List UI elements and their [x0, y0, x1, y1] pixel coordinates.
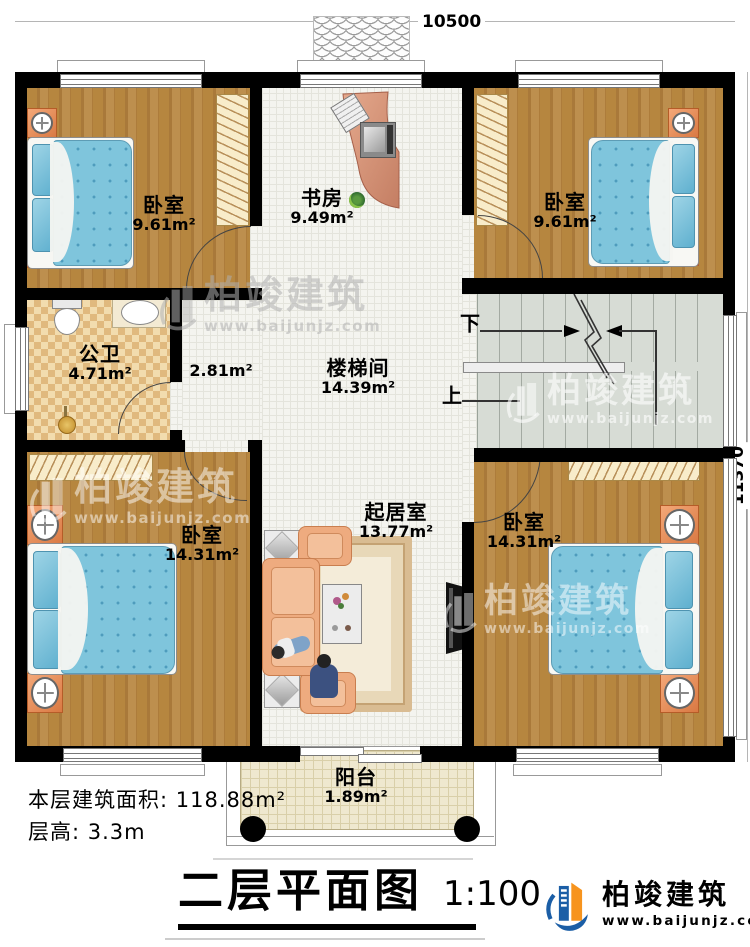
room-area: 13.77m² — [359, 523, 433, 541]
nightstand — [660, 673, 699, 713]
stair-direction-line — [462, 400, 520, 402]
room-label-bathroom: 公卫 4.71m² — [68, 343, 131, 383]
person-figure — [306, 652, 342, 702]
brand-logo: 柏竣建筑 www.baijunjz.com — [542, 876, 750, 934]
title-underline-thin — [165, 938, 485, 940]
room-area: 4.71m² — [68, 365, 131, 383]
lamp-icon — [31, 677, 59, 709]
person-body — [310, 664, 338, 698]
balcony-railing-line — [226, 836, 494, 837]
window — [723, 315, 737, 447]
nightstand — [27, 108, 57, 138]
wall-interior — [462, 72, 474, 215]
room-name: 卧室 — [487, 511, 561, 533]
pillow — [672, 144, 695, 194]
stairs-up-label: 上 — [442, 380, 462, 409]
cushion — [271, 567, 315, 615]
title-underline — [178, 924, 476, 930]
window-sill — [513, 764, 662, 776]
dimension-line-right — [747, 72, 748, 762]
doorway-floor — [462, 215, 474, 278]
wardrobe — [216, 94, 249, 226]
wall-interior — [15, 440, 185, 452]
window — [15, 327, 29, 411]
wall-interior — [248, 440, 262, 452]
window — [518, 74, 660, 88]
room-area: 14.31m² — [487, 533, 561, 551]
room-label-bedroom-top-right: 卧室 9.61m² — [533, 191, 596, 231]
stair-break-line — [560, 290, 670, 435]
doorway-floor — [185, 440, 248, 452]
wardrobe — [29, 454, 153, 481]
toilet-bowl — [54, 308, 80, 335]
floor-area-note: 本层建筑面积: 118.88m² — [28, 784, 286, 814]
wall-interior — [170, 300, 182, 382]
lamp-icon — [31, 112, 53, 134]
table-knob — [332, 625, 338, 631]
computer-monitor — [360, 122, 396, 158]
tv-screen-line — [449, 588, 453, 648]
stair-direction-line — [619, 330, 655, 332]
room-name: 卧室 — [132, 194, 195, 216]
leaf-decal — [338, 603, 344, 609]
divider-line — [213, 858, 473, 860]
room-area: 1.89m² — [324, 788, 387, 806]
balcony-column — [454, 816, 480, 842]
bed — [588, 137, 699, 267]
room-name: 阳台 — [324, 766, 387, 788]
room-area: 9.61m² — [533, 213, 596, 231]
floor-height-note: 层高: 3.3m — [28, 816, 146, 846]
shower-head-icon — [56, 406, 76, 432]
window-sill — [60, 764, 205, 776]
stair-direction-line — [655, 330, 657, 425]
monitor-stand — [387, 125, 393, 154]
sliding-door-panel — [300, 747, 364, 756]
room-area: 9.61m² — [132, 216, 195, 234]
wall-interior — [462, 522, 474, 746]
flower-decal — [342, 593, 349, 600]
brand-logo-icon — [542, 876, 594, 934]
nightstand — [27, 505, 63, 545]
window-sill — [736, 312, 747, 450]
lamp-icon — [31, 509, 59, 541]
stair-direction-line — [480, 330, 562, 332]
room-label-balcony: 阳台 1.89m² — [324, 766, 387, 806]
side-table — [264, 672, 300, 708]
nightstand — [668, 108, 699, 138]
wall-interior — [15, 288, 262, 300]
room-area: 2.81m² — [189, 362, 252, 380]
room-name: 卧室 — [533, 191, 596, 213]
toilet-icon — [50, 294, 82, 334]
title-block: 二层平面图 1:100 — [178, 868, 541, 913]
bed — [27, 543, 177, 675]
bed — [548, 543, 700, 675]
lamp-icon — [672, 112, 695, 134]
window — [63, 748, 202, 762]
tv-icon — [446, 582, 462, 654]
title-scale: 1:100 — [443, 877, 541, 913]
dimension-top-label: 10500 — [418, 12, 485, 32]
sink-counter — [112, 296, 166, 328]
lamp-icon — [664, 509, 695, 541]
room-label-living-room: 起居室 13.77m² — [359, 501, 433, 541]
lamp-icon — [664, 677, 695, 709]
wall-left — [15, 72, 27, 762]
wall-interior — [250, 452, 262, 746]
sink-icon — [121, 300, 159, 325]
room-label-bedroom-bottom-right: 卧室 14.31m² — [487, 511, 561, 551]
doorway-floor — [250, 226, 262, 288]
coffee-table — [322, 584, 362, 644]
room-name: 起居室 — [359, 501, 433, 523]
room-area: 14.39m² — [321, 379, 395, 397]
pillow — [672, 196, 695, 248]
brand-name: 柏竣建筑 — [602, 881, 750, 909]
room-name: 楼梯间 — [321, 357, 395, 379]
room-label-stair-hall: 楼梯间 14.39m² — [321, 357, 395, 397]
room-name: 卧室 — [165, 524, 239, 546]
window — [300, 74, 422, 88]
floor-plan-canvas: 10500 11370 — [0, 0, 750, 947]
bed — [27, 137, 134, 269]
wardrobe — [476, 94, 508, 226]
nightstand — [27, 673, 63, 713]
cushion — [307, 533, 343, 559]
wall-interior — [250, 72, 262, 226]
pillow — [33, 551, 61, 609]
room-label-study: 书房 9.49m² — [290, 187, 353, 227]
pillow — [665, 551, 693, 609]
balcony-column — [240, 816, 266, 842]
sliding-door-panel — [358, 754, 422, 763]
wall-interior — [462, 278, 735, 294]
room-name: 公卫 — [68, 343, 131, 365]
wall-interior — [474, 448, 735, 462]
pillow — [33, 610, 61, 669]
doorway-floor — [462, 448, 474, 522]
brand-url: www.baijunjz.com — [602, 913, 750, 929]
room-area: 14.31m² — [165, 546, 239, 564]
pillow — [665, 610, 693, 669]
room-name: 书房 — [290, 187, 353, 209]
monitor-screen — [364, 127, 385, 152]
nightstand — [660, 505, 699, 545]
room-label-corridor: 2.81m² — [189, 362, 252, 380]
stairs-down-label: 下 — [460, 308, 480, 337]
room-label-bedroom-bottom-left: 卧室 14.31m² — [165, 524, 239, 564]
room-label-bedroom-top-left: 卧室 9.61m² — [132, 194, 195, 234]
window — [723, 458, 737, 737]
person-head — [317, 654, 331, 668]
window — [516, 748, 659, 762]
side-table-top — [265, 673, 299, 707]
page-title: 二层平面图 — [178, 868, 423, 913]
room-area: 9.49m² — [290, 209, 353, 227]
shower-circle — [58, 416, 76, 434]
window — [60, 74, 202, 88]
doorway-floor — [170, 382, 182, 430]
table-knob — [345, 625, 351, 631]
